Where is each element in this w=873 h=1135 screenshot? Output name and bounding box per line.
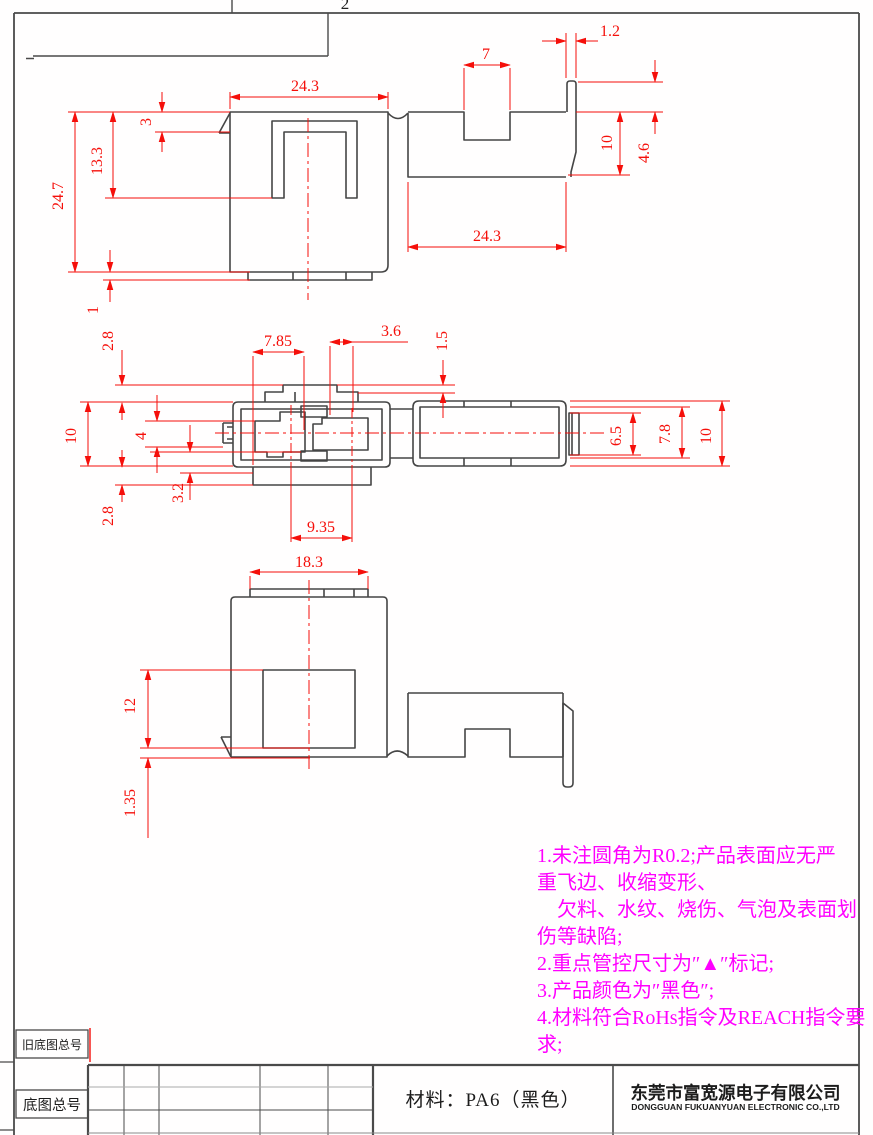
dim-label: 1 <box>85 306 102 314</box>
dim-label: 1.2 <box>600 23 620 40</box>
technical-notes: 1.未注圆角为R0.2;产品表面应无严 重飞边、收缩变形、 欠料、水纹、烧伤、气… <box>537 843 873 1059</box>
dim-label: 3.6 <box>381 323 401 340</box>
company-block: 东莞市富宽源电子有限公司 DONGGUAN FUKUANYUAN ELECTRO… <box>613 1065 858 1131</box>
dim-label: 24.3 <box>473 228 501 245</box>
note-line: 重飞边、收缩变形、 <box>537 870 873 897</box>
company-name-cn: 东莞市富宽源电子有限公司 <box>631 1083 841 1103</box>
dim-label: 10 <box>698 428 715 444</box>
dim-label: 7.8 <box>657 424 674 444</box>
note-line: 2.重点管控尺寸为″▲″标记; <box>537 951 873 978</box>
dim-label: 4 <box>133 432 150 440</box>
middle-view-dimensions <box>80 342 730 542</box>
dim-label: 10 <box>599 135 616 151</box>
note-line: 求; <box>537 1032 873 1059</box>
bottom-view-part <box>221 589 573 787</box>
dim-label: 12 <box>122 698 139 714</box>
dim-label: 6.5 <box>608 426 625 446</box>
dim-label: 2.8 <box>100 506 117 526</box>
top-view-part <box>219 81 576 280</box>
base-drawing-number-label: 底图总号 <box>16 1090 88 1118</box>
dim-label: 3 <box>138 118 155 126</box>
dim-label: 18.3 <box>295 554 323 571</box>
dim-label: 9.35 <box>307 519 335 536</box>
dim-label: 24.7 <box>50 182 67 210</box>
dim-label: 3.2 <box>170 483 187 503</box>
dim-label: 13.3 <box>89 147 106 175</box>
dim-label: 10 <box>63 428 80 444</box>
dim-label: 2.8 <box>100 331 117 351</box>
drawing-sheet: 24.3 7 1.2 3 13.3 24.7 10 4.6 24.3 1 2.8… <box>0 0 873 1135</box>
top-view-dimensions <box>68 33 663 302</box>
dim-label: 1.35 <box>122 789 139 817</box>
bottom-view-dimensions <box>140 572 368 838</box>
note-line: 伤等缺陷; <box>537 924 873 951</box>
note-line: 4.材料符合RoHs指令及REACH指令要 <box>537 1005 873 1032</box>
material-spec: 材料：PA6（黑色） <box>373 1065 613 1131</box>
note-line: 欠料、水纹、烧伤、气泡及表面划 <box>537 897 873 924</box>
note-line: 3.产品颜色为″黑色″; <box>537 978 873 1005</box>
dim-label: 24.3 <box>291 78 319 95</box>
middle-view-part <box>223 385 579 485</box>
company-name-en: DONGGUAN FUKUANYUAN ELECTRONIC CO.,LTD <box>631 1103 839 1113</box>
sheet-zone-label: 2 <box>341 0 350 13</box>
old-base-drawing-number-label: 旧底图总号 <box>16 1030 88 1058</box>
dim-label: 1.5 <box>434 331 451 351</box>
note-line: 1.未注圆角为R0.2;产品表面应无严 <box>537 843 873 870</box>
dim-label: 7 <box>482 46 490 63</box>
dim-label: 4.6 <box>636 143 653 163</box>
dim-label: 7.85 <box>264 333 292 350</box>
